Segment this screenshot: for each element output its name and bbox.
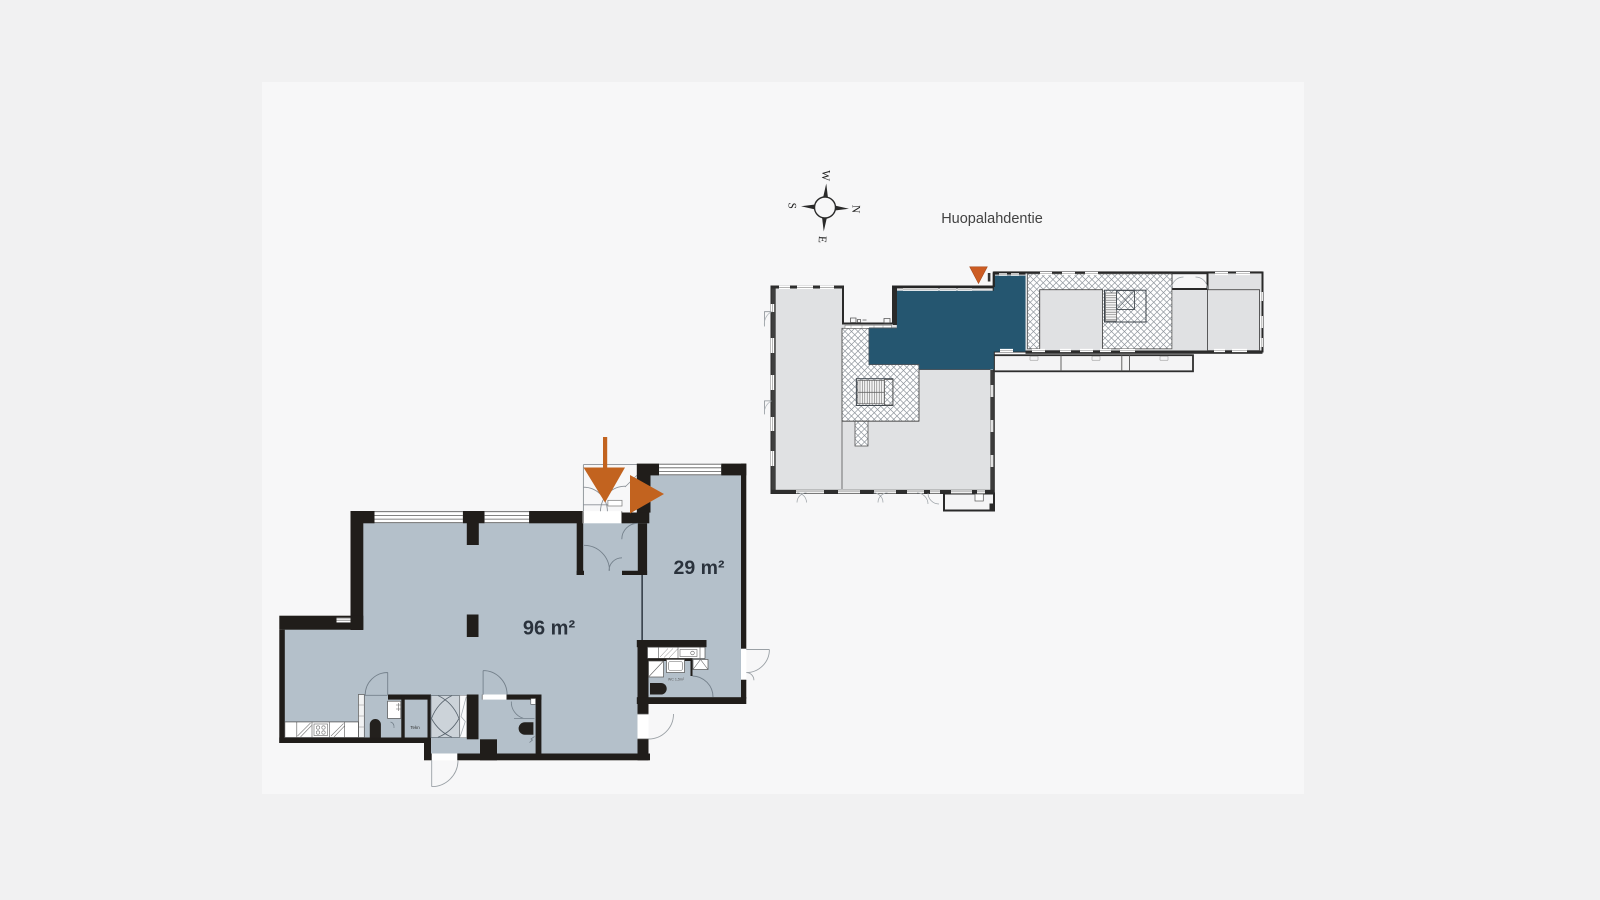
svg-text:W: W <box>819 170 832 182</box>
svg-text:29 m²: 29 m² <box>674 557 725 579</box>
svg-text:WC 1,5m²: WC 1,5m² <box>668 678 685 682</box>
svg-text:96 m²: 96 m² <box>523 618 576 640</box>
svg-text:E: E <box>816 236 828 244</box>
svg-text:S: S <box>785 202 797 209</box>
svg-text:Tekn: Tekn <box>410 725 420 730</box>
svg-text:N: N <box>849 205 861 215</box>
svg-text:Huopalahdentie: Huopalahdentie <box>941 211 1043 227</box>
